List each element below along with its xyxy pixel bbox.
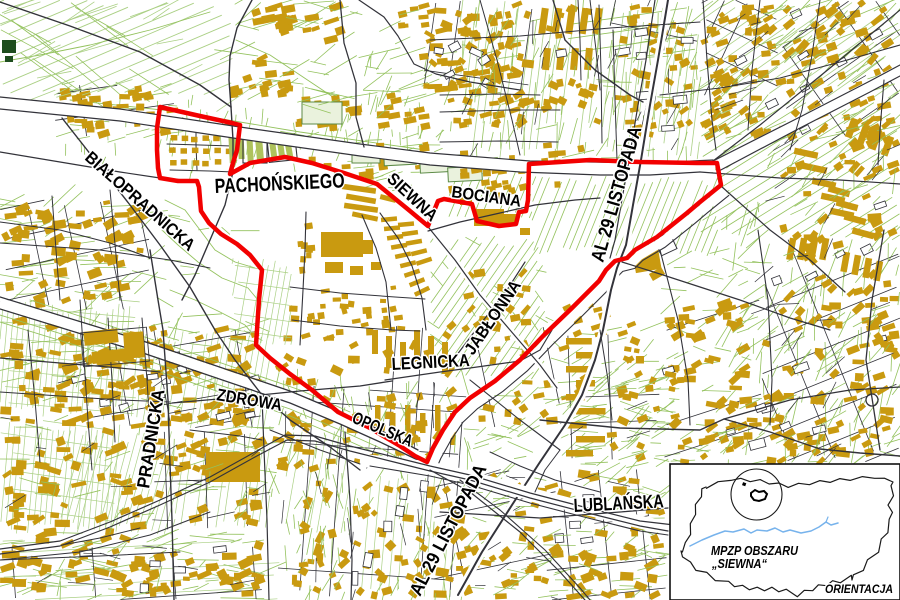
- svg-text:LEGNICKA: LEGNICKA: [391, 350, 470, 374]
- svg-text:„SIEWNA“: „SIEWNA“: [711, 557, 768, 571]
- svg-text:ORIENTACJA: ORIENTACJA: [825, 582, 893, 596]
- svg-text:MPZP OBSZARU: MPZP OBSZARU: [711, 544, 799, 558]
